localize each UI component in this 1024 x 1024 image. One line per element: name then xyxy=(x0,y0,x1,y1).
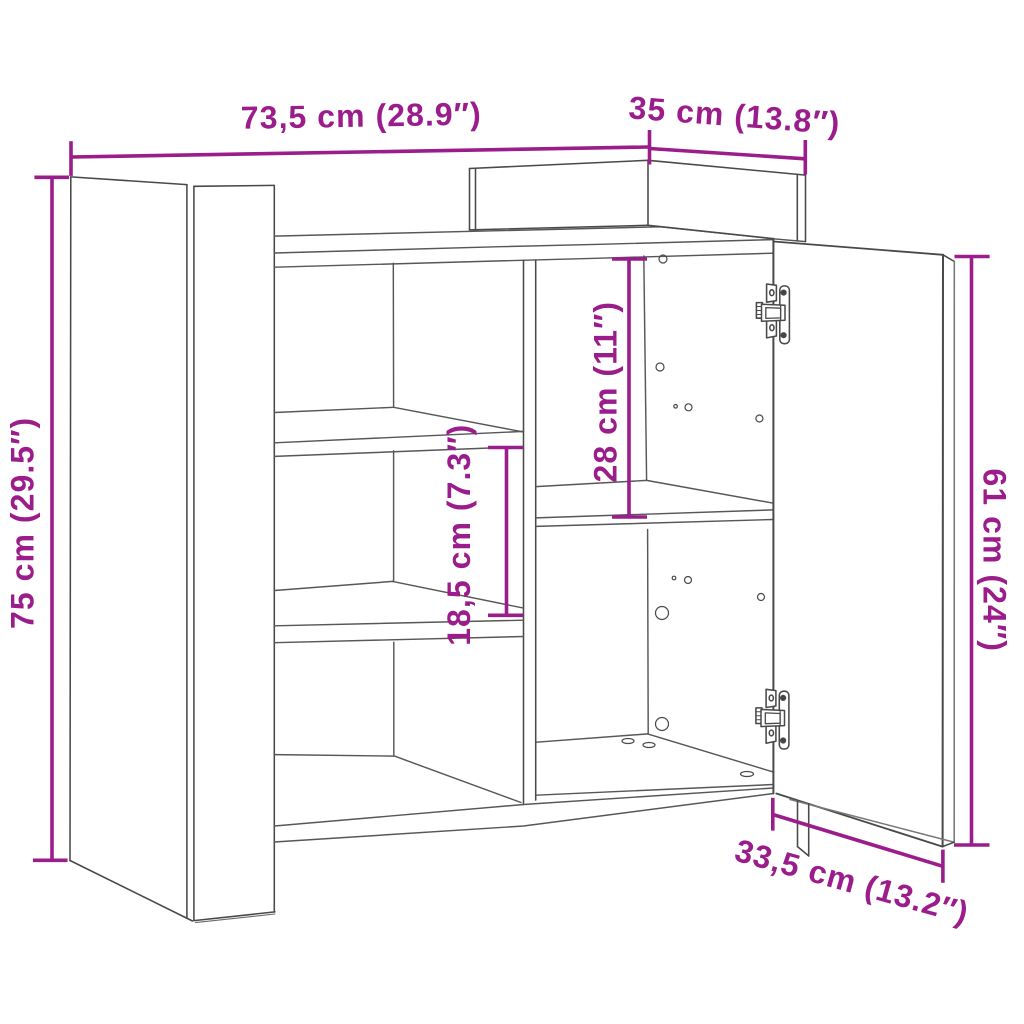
svg-text:61 cm (24″): 61 cm (24″) xyxy=(977,469,1013,652)
svg-text:18,5 cm (7.3″): 18,5 cm (7.3″) xyxy=(441,424,477,646)
svg-text:28 cm (11″): 28 cm (11″) xyxy=(588,301,624,483)
svg-text:75 cm (29.5″): 75 cm (29.5″) xyxy=(5,417,41,629)
svg-text:73,5 cm (28.9″): 73,5 cm (28.9″) xyxy=(240,96,482,136)
